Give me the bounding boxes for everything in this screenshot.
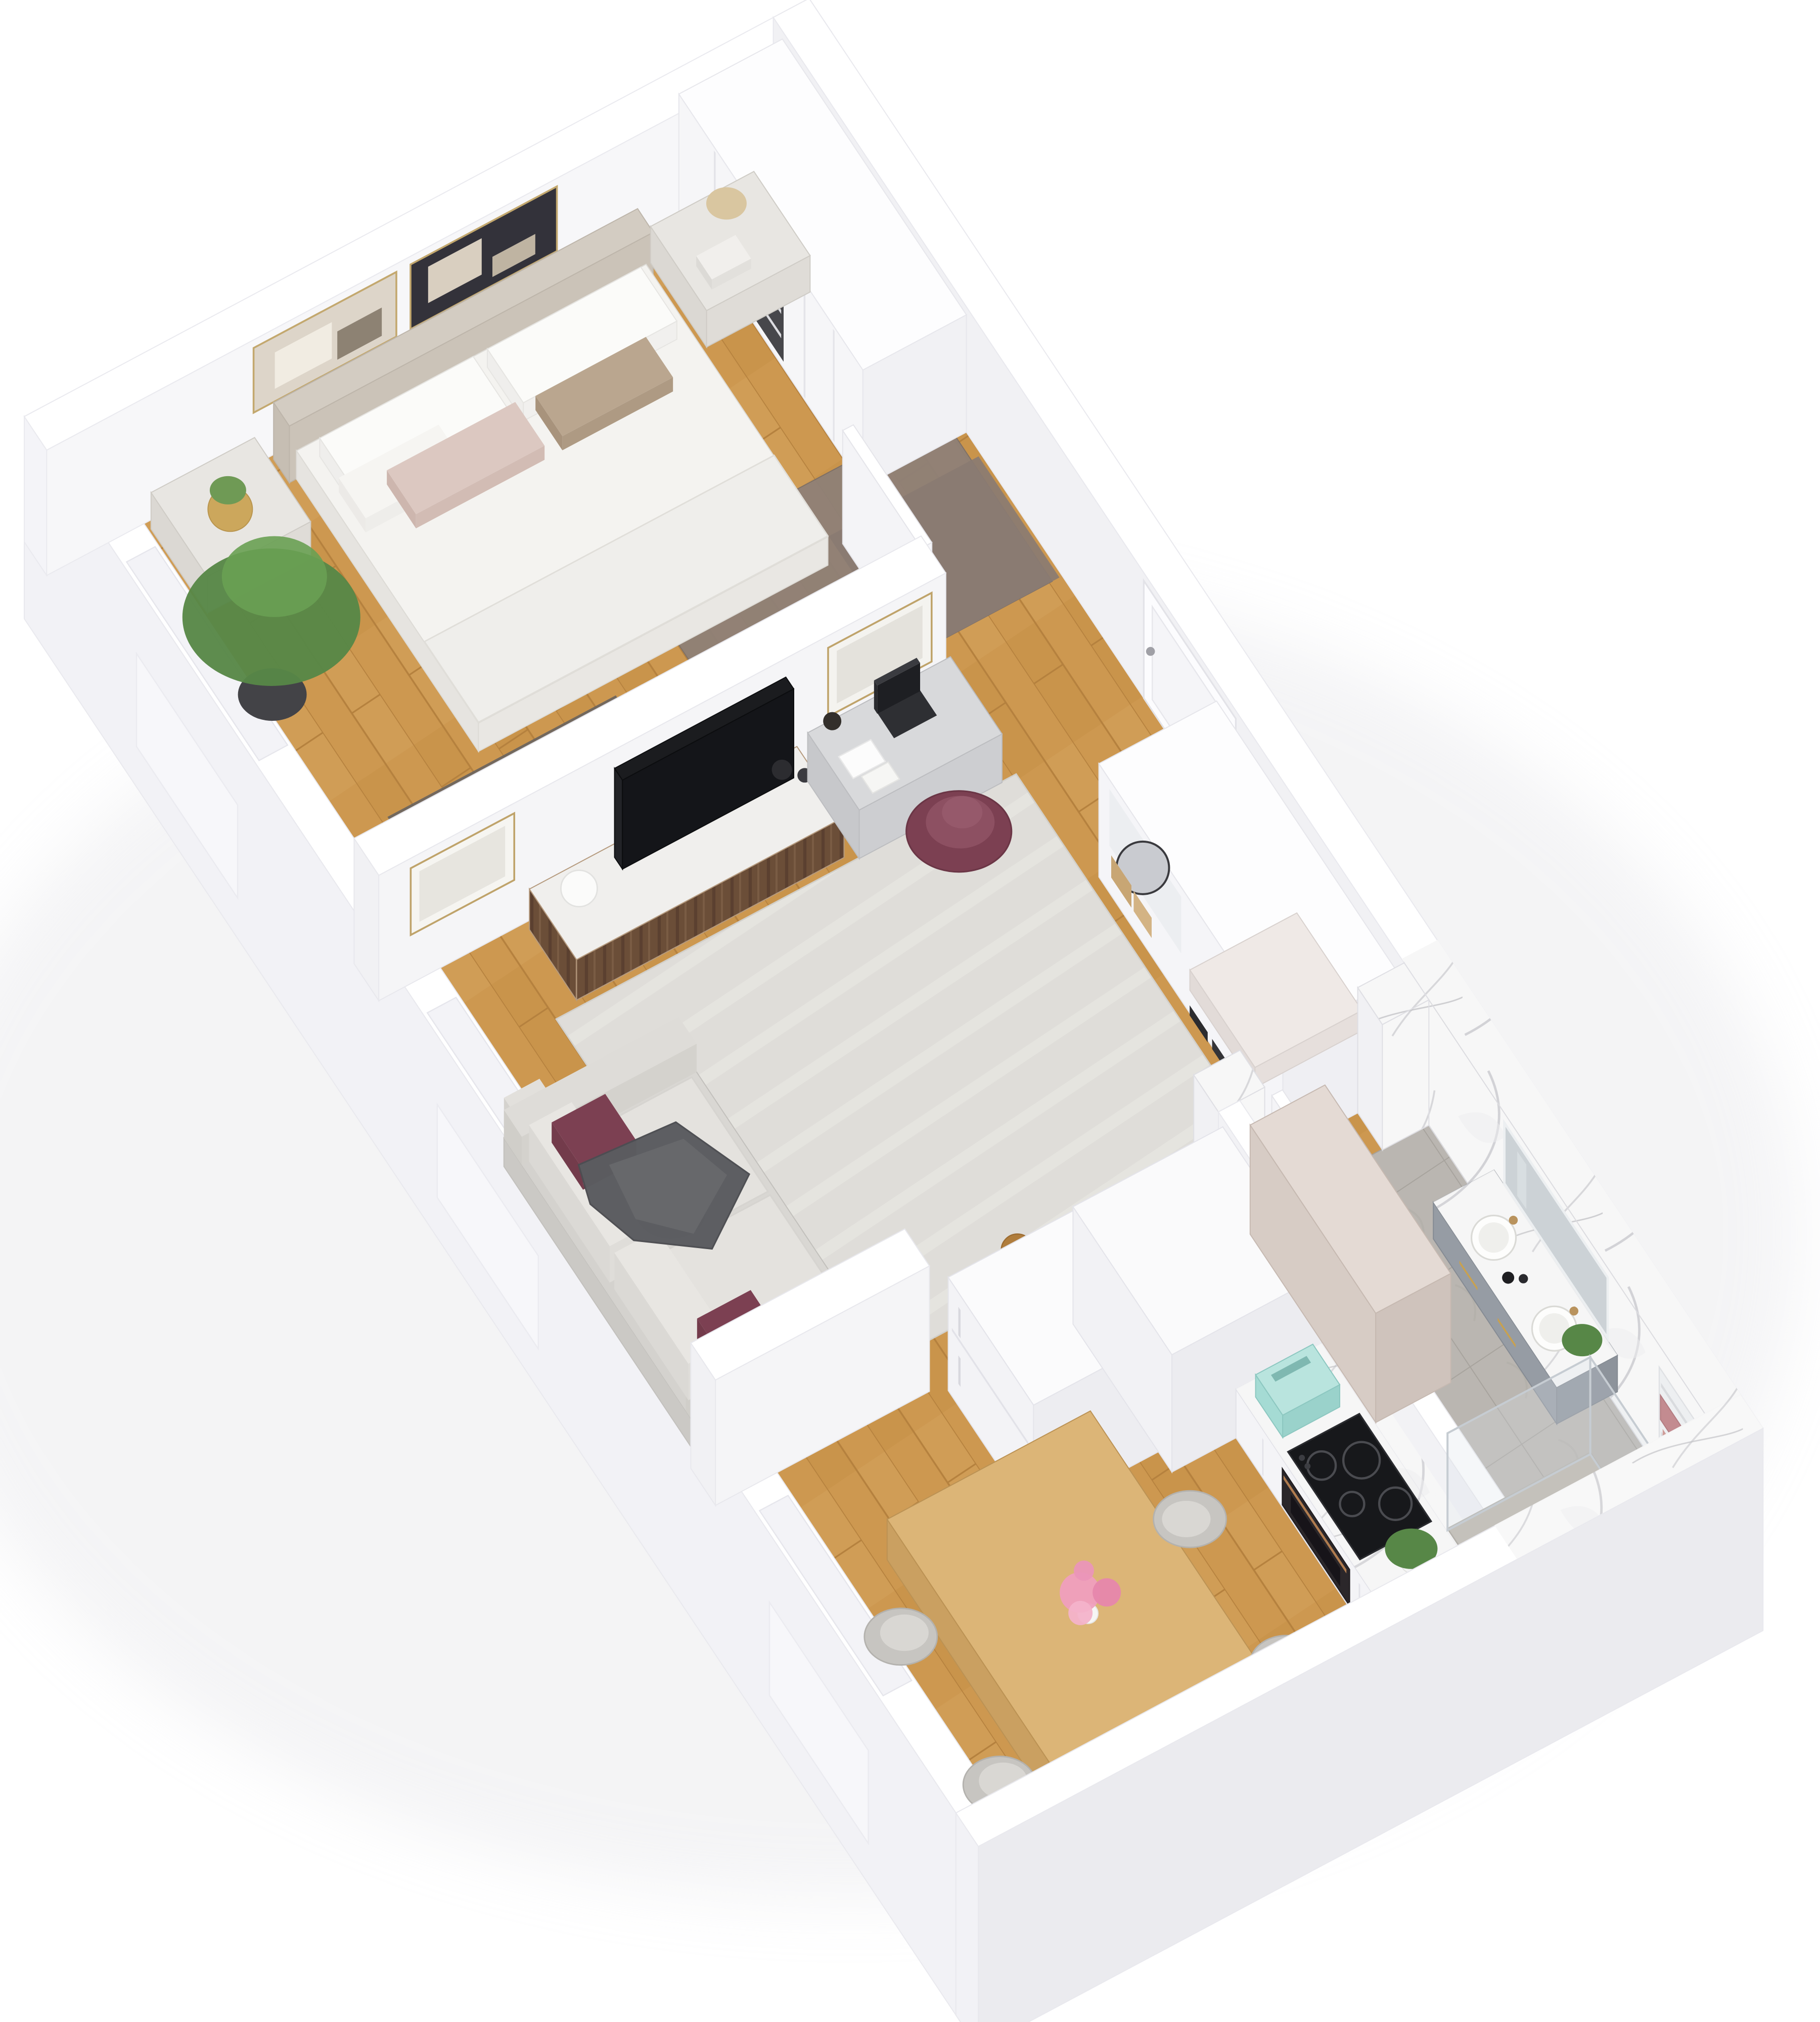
- fridge-handle: [959, 1307, 961, 1338]
- pink-flowers: [1093, 1578, 1121, 1606]
- cooktop-knob: [1304, 1463, 1310, 1469]
- tv-screen: [615, 768, 623, 869]
- pink-flowers: [1074, 1560, 1094, 1581]
- cosmetic-bottle: [1519, 1274, 1528, 1283]
- wardrobe-door-seam: [804, 285, 806, 399]
- floorplan-render-page: [0, 0, 1820, 2022]
- front-door-handle: [1146, 647, 1155, 656]
- accent-chair-burgundy-cushion: [942, 796, 982, 829]
- sphere-lamp: [561, 870, 597, 907]
- bathroom-plant: [1562, 1324, 1602, 1356]
- wardrobe-door-seam: [833, 329, 835, 442]
- wall-bath-door-stub-right: [1382, 1000, 1429, 1150]
- cabinet-seam: [1262, 1438, 1263, 1477]
- nightstand-plant: [210, 476, 246, 504]
- scene-root: [0, 0, 1800, 2022]
- pink-flowers: [1068, 1601, 1093, 1625]
- pampas-vase: [706, 187, 747, 219]
- vanity-faucet: [1509, 1216, 1518, 1225]
- cooktop-knob: [1299, 1455, 1305, 1461]
- fridge-handle: [959, 1355, 961, 1387]
- cosmetic-bottle: [1502, 1272, 1514, 1284]
- apartment-3d-floorplan: [0, 0, 1820, 2022]
- laptop-screen: [874, 680, 877, 714]
- dining-chair-seat: [1162, 1501, 1211, 1537]
- vanity-faucet: [1569, 1307, 1578, 1316]
- dining-chair-seat: [880, 1615, 929, 1651]
- vanity-sink-basin: [1479, 1222, 1509, 1253]
- desk-lamp: [823, 712, 841, 730]
- decor-vase-dark: [772, 760, 792, 780]
- plant-fern-highlight: [222, 536, 327, 617]
- outer-wall-bottom: [956, 1813, 978, 2022]
